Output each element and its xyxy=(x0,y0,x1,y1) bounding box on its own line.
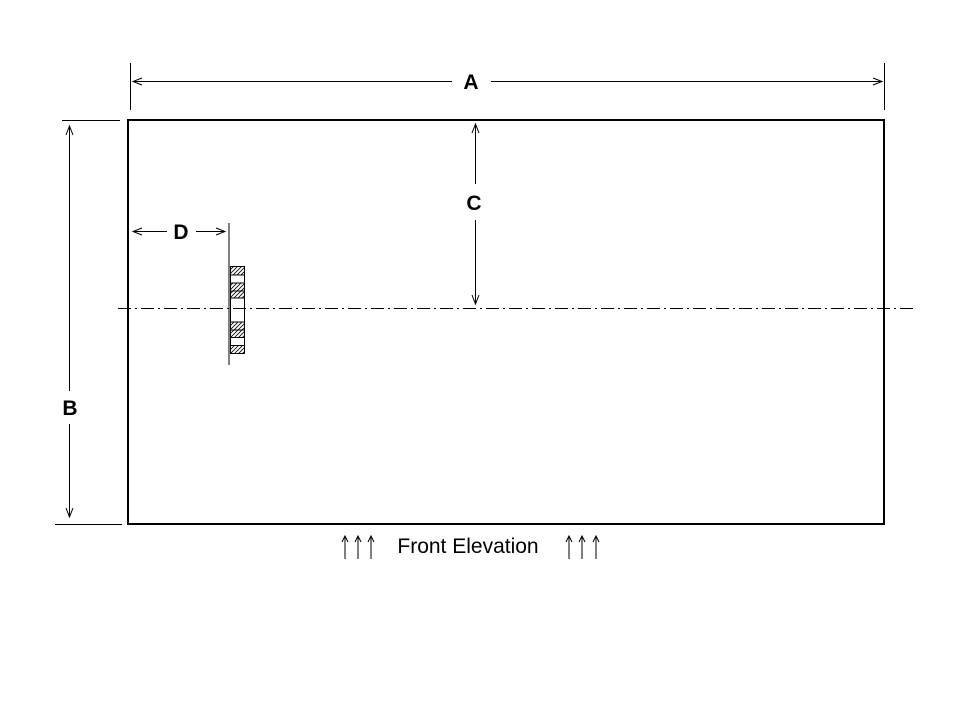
flange-hatch-band xyxy=(231,322,245,330)
caption-group: Front Elevation xyxy=(345,535,596,559)
dimension-b: B xyxy=(55,121,122,525)
flange-hatch-band xyxy=(231,267,245,276)
flange-hatch-band xyxy=(231,330,245,338)
flange-outline xyxy=(231,267,245,354)
dimension-c: C xyxy=(466,124,481,304)
flange-hatch-band xyxy=(231,283,245,291)
dimension-d-label: D xyxy=(173,221,188,244)
dimension-c-label: C xyxy=(466,192,481,215)
flange-hatch-band xyxy=(231,291,245,298)
dimension-d: D xyxy=(133,221,229,365)
dimension-a: A xyxy=(131,63,885,110)
front-elevation-drawing: A B C D xyxy=(0,0,960,720)
technical-drawing-canvas: A B C D xyxy=(0,0,960,720)
view-caption: Front Elevation xyxy=(397,535,538,558)
flange-cross-section xyxy=(231,267,245,354)
dimension-a-label: A xyxy=(463,71,478,94)
flange-hatch-band xyxy=(231,346,245,354)
dimension-b-label: B xyxy=(62,397,77,420)
up-arrows-right xyxy=(569,536,596,559)
up-arrows-left xyxy=(345,536,371,559)
